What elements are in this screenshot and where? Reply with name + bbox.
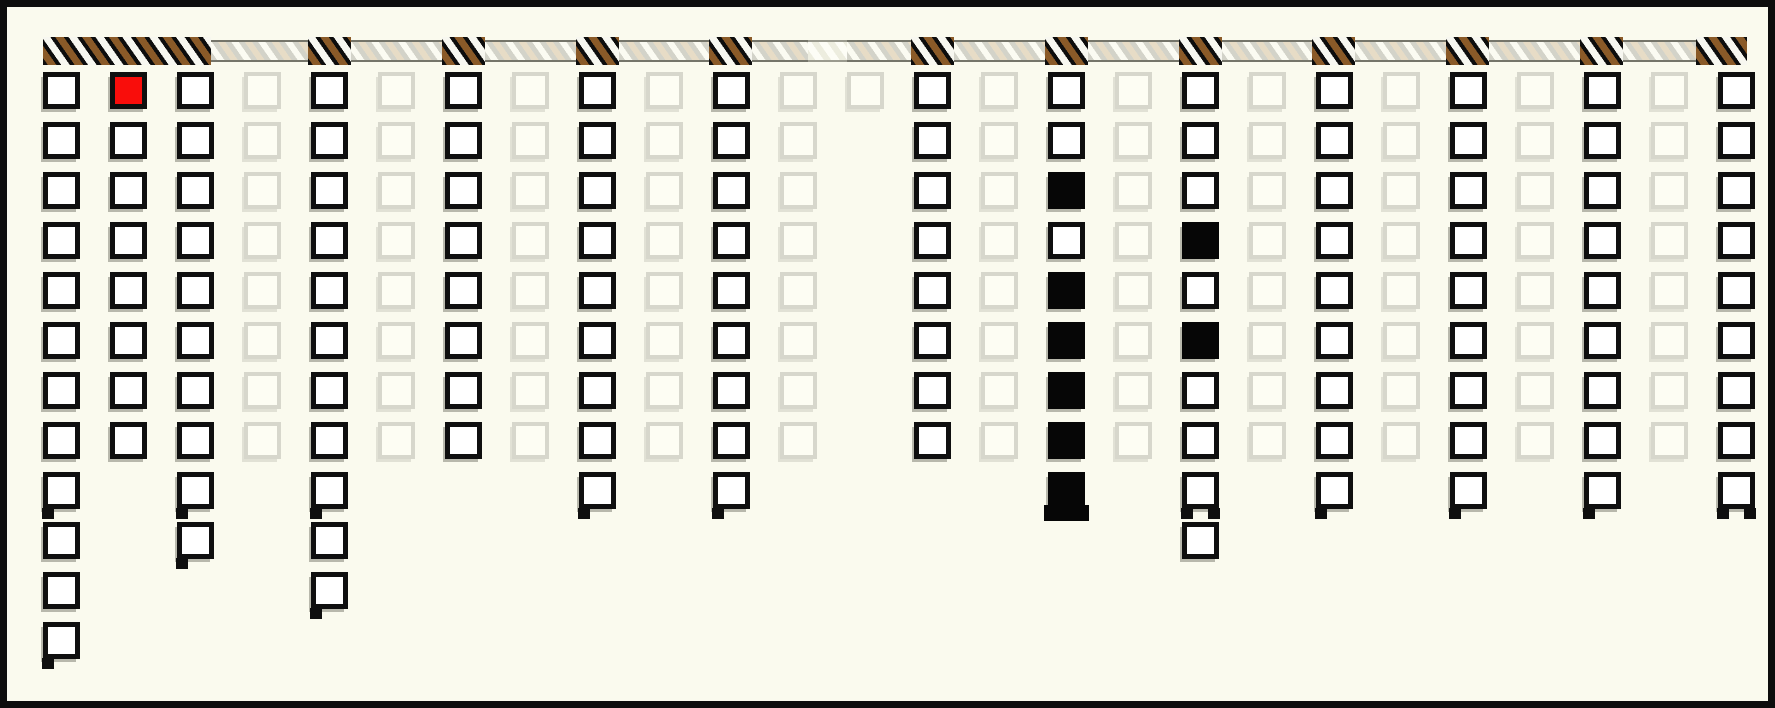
board-cell-c22-r2[interactable] — [1450, 122, 1487, 159]
board-cell-c19-r4[interactable] — [1249, 222, 1286, 259]
board-cell-c16-r7[interactable] — [1048, 372, 1085, 409]
board-cell-c7-r2[interactable] — [445, 122, 482, 159]
board-cell-c2-r8[interactable] — [110, 422, 147, 459]
board-cell-c17-r2[interactable] — [1115, 122, 1152, 159]
board-cell-c12-r1[interactable] — [780, 72, 817, 109]
board-cell-c4-r5[interactable] — [244, 272, 281, 309]
board-cell-c7-r6[interactable] — [445, 322, 482, 359]
board-cell-c22-r3[interactable] — [1450, 172, 1487, 209]
board-cell-c23-r1[interactable] — [1517, 72, 1554, 109]
track-segment-dark-20 — [1446, 37, 1489, 65]
board-cell-c5-r6[interactable] — [311, 322, 348, 359]
game-window — [0, 0, 1775, 708]
board-cell-c10-r5[interactable] — [646, 272, 683, 309]
board-cell-c26-r4[interactable] — [1718, 222, 1755, 259]
board-cell-c12-r4[interactable] — [780, 222, 817, 259]
board-cell-c9-r2[interactable] — [579, 122, 616, 159]
board-cell-c5-r2[interactable] — [311, 122, 348, 159]
track-segment-light-13 — [954, 40, 1045, 62]
board-cell-c14-r1[interactable] — [914, 72, 951, 109]
board-cell-c23-r5[interactable] — [1517, 272, 1554, 309]
board-cell-c24-r4[interactable] — [1584, 222, 1621, 259]
board-cell-c8-r7[interactable] — [512, 372, 549, 409]
board-cell-c26-r5[interactable] — [1718, 272, 1755, 309]
board-cell-c6-r3[interactable] — [378, 172, 415, 209]
board-cell-c14-r5[interactable] — [914, 272, 951, 309]
board-cell-c11-r6[interactable] — [713, 322, 750, 359]
board-cell-c5-r4[interactable] — [311, 222, 348, 259]
board-cell-c24-r9[interactable] — [1584, 472, 1621, 509]
board-cell-c3-r9[interactable] — [177, 472, 214, 509]
board-cell-c4-r8[interactable] — [244, 422, 281, 459]
track-segment-light-9 — [752, 40, 808, 62]
board-cell-c21-r3[interactable] — [1383, 172, 1420, 209]
board-cell-c13-r1[interactable] — [847, 72, 884, 109]
board-cell-c18-r9[interactable] — [1182, 472, 1219, 509]
board-cell-c8-r5[interactable] — [512, 272, 549, 309]
board-cell-c3-r5[interactable] — [177, 272, 214, 309]
board-cell-c18-r2[interactable] — [1182, 122, 1219, 159]
board-cell-c21-r7[interactable] — [1383, 372, 1420, 409]
board-cell-c15-r1[interactable] — [981, 72, 1018, 109]
board-cell-c11-r1[interactable] — [713, 72, 750, 109]
track-segment-dark-18 — [1312, 37, 1355, 65]
board-cell-c21-r4[interactable] — [1383, 222, 1420, 259]
board-cell-c10-r6[interactable] — [646, 322, 683, 359]
board-cell-c19-r6[interactable] — [1249, 322, 1286, 359]
board-cell-c20-r2[interactable] — [1316, 122, 1353, 159]
board-cell-c22-r9[interactable] — [1450, 472, 1487, 509]
track-segment-dark-22 — [1580, 37, 1623, 65]
track-segment-light-21 — [1489, 40, 1580, 62]
board-cell-c17-r4[interactable] — [1115, 222, 1152, 259]
board-cell-c2-r1[interactable] — [110, 72, 147, 109]
board-cell-c3-r2[interactable] — [177, 122, 214, 159]
board-cell-c9-r3[interactable] — [579, 172, 616, 209]
board-cell-c19-r7[interactable] — [1249, 372, 1286, 409]
board-cell-c25-r2[interactable] — [1651, 122, 1688, 159]
board-cell-c1-r7[interactable] — [43, 372, 80, 409]
board-cell-c25-r4[interactable] — [1651, 222, 1688, 259]
board-cell-c16-r1[interactable] — [1048, 72, 1085, 109]
board-cell-c8-r8[interactable] — [512, 422, 549, 459]
board-cell-c17-r1[interactable] — [1115, 72, 1152, 109]
board-cell-c1-r11[interactable] — [43, 572, 80, 609]
board-cell-c22-r5[interactable] — [1450, 272, 1487, 309]
board-cell-c11-r9[interactable] — [713, 472, 750, 509]
board-cell-c2-r2[interactable] — [110, 122, 147, 159]
board-cell-c5-r11[interactable] — [311, 572, 348, 609]
track-segment-dark-6 — [576, 37, 619, 65]
board-cell-c23-r8[interactable] — [1517, 422, 1554, 459]
board-cell-c6-r6[interactable] — [378, 322, 415, 359]
board-cell-c1-r10[interactable] — [43, 522, 80, 559]
track-segment-dark-14 — [1045, 37, 1088, 65]
board-cell-c20-r5[interactable] — [1316, 272, 1353, 309]
board-cell-c7-r4[interactable] — [445, 222, 482, 259]
board-cell-c7-r5[interactable] — [445, 272, 482, 309]
board-cell-c15-r7[interactable] — [981, 372, 1018, 409]
board-cell-c4-r6[interactable] — [244, 322, 281, 359]
board-cell-c11-r2[interactable] — [713, 122, 750, 159]
board-cell-c18-r3[interactable] — [1182, 172, 1219, 209]
board-cell-c9-r6[interactable] — [579, 322, 616, 359]
board-cell-c2-r6[interactable] — [110, 322, 147, 359]
board-cell-c5-r9[interactable] — [311, 472, 348, 509]
board-cell-c4-r2[interactable] — [244, 122, 281, 159]
board-cell-c1-r9[interactable] — [43, 472, 80, 509]
board-cell-c24-r8[interactable] — [1584, 422, 1621, 459]
board-cell-c4-r7[interactable] — [244, 372, 281, 409]
board-cell-c24-r6[interactable] — [1584, 322, 1621, 359]
board-cell-c18-r8[interactable] — [1182, 422, 1219, 459]
board-cell-c24-r7[interactable] — [1584, 372, 1621, 409]
board-cell-c6-r4[interactable] — [378, 222, 415, 259]
board-cell-c26-r8[interactable] — [1718, 422, 1755, 459]
track-segment-dark-4 — [442, 37, 485, 65]
board-cell-c17-r3[interactable] — [1115, 172, 1152, 209]
board-cell-c7-r8[interactable] — [445, 422, 482, 459]
board-cell-c25-r6[interactable] — [1651, 322, 1688, 359]
board-cell-c20-r9[interactable] — [1316, 472, 1353, 509]
board-cell-c16-r2[interactable] — [1048, 122, 1085, 159]
board-cell-c16-r5[interactable] — [1048, 272, 1085, 309]
board-cell-c6-r1[interactable] — [378, 72, 415, 109]
board-cell-c12-r6[interactable] — [780, 322, 817, 359]
board-cell-c24-r2[interactable] — [1584, 122, 1621, 159]
board-cell-c9-r4[interactable] — [579, 222, 616, 259]
board-cell-c1-r6[interactable] — [43, 322, 80, 359]
track-segment-light-19 — [1355, 40, 1446, 62]
board-cell-c7-r1[interactable] — [445, 72, 482, 109]
board-cell-c21-r6[interactable] — [1383, 322, 1420, 359]
track-segment-dark-12 — [911, 37, 954, 65]
track-segment-light-7 — [619, 40, 709, 62]
board-cell-c17-r7[interactable] — [1115, 372, 1152, 409]
board-cell-c16-r8[interactable] — [1048, 422, 1085, 459]
board-cell-c11-r7[interactable] — [713, 372, 750, 409]
board-cell-c8-r4[interactable] — [512, 222, 549, 259]
board-cell-c9-r8[interactable] — [579, 422, 616, 459]
board-cell-c17-r5[interactable] — [1115, 272, 1152, 309]
track-segment-light-3 — [351, 40, 442, 62]
board-cell-c12-r5[interactable] — [780, 272, 817, 309]
board-cell-c19-r2[interactable] — [1249, 122, 1286, 159]
board-cell-c10-r4[interactable] — [646, 222, 683, 259]
board-cell-c9-r7[interactable] — [579, 372, 616, 409]
board-cell-c10-r8[interactable] — [646, 422, 683, 459]
track-segment-light-1 — [211, 40, 308, 62]
board-cell-c25-r1[interactable] — [1651, 72, 1688, 109]
board-cell-c10-r1[interactable] — [646, 72, 683, 109]
board-cell-c10-r7[interactable] — [646, 372, 683, 409]
board-cell-c12-r7[interactable] — [780, 372, 817, 409]
board-cell-c6-r5[interactable] — [378, 272, 415, 309]
board-cell-c5-r1[interactable] — [311, 72, 348, 109]
board-cell-c15-r5[interactable] — [981, 272, 1018, 309]
board-cell-c5-r8[interactable] — [311, 422, 348, 459]
board-cell-c7-r7[interactable] — [445, 372, 482, 409]
board-cell-c24-r3[interactable] — [1584, 172, 1621, 209]
track-segment-dark-0 — [43, 37, 211, 65]
track-segment-light-5 — [485, 40, 576, 62]
board-cell-c5-r3[interactable] — [311, 172, 348, 209]
board-cell-c22-r1[interactable] — [1450, 72, 1487, 109]
board-cell-c12-r8[interactable] — [780, 422, 817, 459]
board-cell-c22-r8[interactable] — [1450, 422, 1487, 459]
board-cell-c10-r3[interactable] — [646, 172, 683, 209]
board-cell-c3-r3[interactable] — [177, 172, 214, 209]
board-cell-c11-r3[interactable] — [713, 172, 750, 209]
board-cell-c5-r5[interactable] — [311, 272, 348, 309]
board-cell-c18-r7[interactable] — [1182, 372, 1219, 409]
board-cell-c20-r8[interactable] — [1316, 422, 1353, 459]
board-cell-c16-r9[interactable] — [1048, 472, 1085, 509]
board-cell-c16-r3[interactable] — [1048, 172, 1085, 209]
board-cell-c5-r7[interactable] — [311, 372, 348, 409]
board-cell-c3-r7[interactable] — [177, 372, 214, 409]
board-cell-c20-r1[interactable] — [1316, 72, 1353, 109]
board-cell-c24-r5[interactable] — [1584, 272, 1621, 309]
board-cell-c1-r4[interactable] — [43, 222, 80, 259]
board-cell-c12-r2[interactable] — [780, 122, 817, 159]
board-cell-c20-r3[interactable] — [1316, 172, 1353, 209]
board-cell-c21-r2[interactable] — [1383, 122, 1420, 159]
board-cell-c20-r6[interactable] — [1316, 322, 1353, 359]
board-cell-c23-r4[interactable] — [1517, 222, 1554, 259]
track-segment-dark-16 — [1179, 37, 1222, 65]
board-cell-c14-r6[interactable] — [914, 322, 951, 359]
board-cell-c25-r3[interactable] — [1651, 172, 1688, 209]
board-cell-c7-r3[interactable] — [445, 172, 482, 209]
board-cell-c6-r2[interactable] — [378, 122, 415, 159]
board-cell-c18-r6[interactable] — [1182, 322, 1219, 359]
board-cell-c26-r9[interactable] — [1718, 472, 1755, 509]
board-cell-c17-r8[interactable] — [1115, 422, 1152, 459]
board-cell-c9-r9[interactable] — [579, 472, 616, 509]
board-cell-c8-r1[interactable] — [512, 72, 549, 109]
board-cell-c2-r4[interactable] — [110, 222, 147, 259]
board-cell-c3-r8[interactable] — [177, 422, 214, 459]
board-cell-c20-r7[interactable] — [1316, 372, 1353, 409]
board-cell-c8-r6[interactable] — [512, 322, 549, 359]
track-segment-light-15 — [1088, 40, 1179, 62]
board-cell-c19-r1[interactable] — [1249, 72, 1286, 109]
board-cell-c8-r2[interactable] — [512, 122, 549, 159]
board-cell-c25-r5[interactable] — [1651, 272, 1688, 309]
board-cell-c4-r3[interactable] — [244, 172, 281, 209]
board-cell-c26-r2[interactable] — [1718, 122, 1755, 159]
board-cell-c26-r1[interactable] — [1718, 72, 1755, 109]
board-cell-c3-r10[interactable] — [177, 522, 214, 559]
board-cell-c25-r8[interactable] — [1651, 422, 1688, 459]
track-segment-light-11 — [847, 40, 911, 62]
board-cell-c23-r7[interactable] — [1517, 372, 1554, 409]
board-cell-c9-r5[interactable] — [579, 272, 616, 309]
board-cell-c2-r7[interactable] — [110, 372, 147, 409]
board-cell-c11-r4[interactable] — [713, 222, 750, 259]
track-segment-dark-8 — [709, 37, 752, 65]
board-cell-c3-r1[interactable] — [177, 72, 214, 109]
track-segment-light-23 — [1623, 40, 1696, 62]
board-cell-c15-r4[interactable] — [981, 222, 1018, 259]
board-cell-c22-r6[interactable] — [1450, 322, 1487, 359]
board-cell-c2-r3[interactable] — [110, 172, 147, 209]
board-cell-c21-r5[interactable] — [1383, 272, 1420, 309]
board-cell-c18-r5[interactable] — [1182, 272, 1219, 309]
board-cell-c1-r8[interactable] — [43, 422, 80, 459]
board-cell-c22-r7[interactable] — [1450, 372, 1487, 409]
board-cell-c17-r6[interactable] — [1115, 322, 1152, 359]
board-cell-c14-r4[interactable] — [914, 222, 951, 259]
board-cell-c1-r3[interactable] — [43, 172, 80, 209]
board-cell-c1-r2[interactable] — [43, 122, 80, 159]
board-cell-c15-r3[interactable] — [981, 172, 1018, 209]
board-cell-c18-r10[interactable] — [1182, 522, 1219, 559]
board-cell-c22-r4[interactable] — [1450, 222, 1487, 259]
board-cell-c11-r8[interactable] — [713, 422, 750, 459]
board-cell-c18-r1[interactable] — [1182, 72, 1219, 109]
board-cell-c14-r2[interactable] — [914, 122, 951, 159]
board-cell-c14-r7[interactable] — [914, 372, 951, 409]
board-cell-c19-r3[interactable] — [1249, 172, 1286, 209]
board-cell-c20-r4[interactable] — [1316, 222, 1353, 259]
track-segment-dark-2 — [308, 37, 351, 65]
board-cell-c1-r12[interactable] — [43, 622, 80, 659]
board-cell-c23-r2[interactable] — [1517, 122, 1554, 159]
board-cell-c21-r8[interactable] — [1383, 422, 1420, 459]
board-cell-c1-r5[interactable] — [43, 272, 80, 309]
board-cell-c24-r1[interactable] — [1584, 72, 1621, 109]
board-cell-c3-r4[interactable] — [177, 222, 214, 259]
board-cell-c6-r7[interactable] — [378, 372, 415, 409]
board-cell-c19-r8[interactable] — [1249, 422, 1286, 459]
board-cell-c21-r1[interactable] — [1383, 72, 1420, 109]
board-cell-c16-r6[interactable] — [1048, 322, 1085, 359]
board-cell-c23-r6[interactable] — [1517, 322, 1554, 359]
board-cell-c4-r4[interactable] — [244, 222, 281, 259]
track-segment-light-17 — [1222, 40, 1312, 62]
board-cell-c26-r7[interactable] — [1718, 372, 1755, 409]
board-cell-c15-r8[interactable] — [981, 422, 1018, 459]
board-cell-c15-r6[interactable] — [981, 322, 1018, 359]
board-cell-c15-r2[interactable] — [981, 122, 1018, 159]
board-cell-c19-r5[interactable] — [1249, 272, 1286, 309]
board-cell-c14-r8[interactable] — [914, 422, 951, 459]
board-cell-c2-r5[interactable] — [110, 272, 147, 309]
board-cell-c14-r3[interactable] — [914, 172, 951, 209]
board-cell-c12-r3[interactable] — [780, 172, 817, 209]
board-cell-c16-r4[interactable] — [1048, 222, 1085, 259]
board-cell-c4-r1[interactable] — [244, 72, 281, 109]
board-cell-c18-r4[interactable] — [1182, 222, 1219, 259]
board-cell-c23-r3[interactable] — [1517, 172, 1554, 209]
board-cell-c10-r2[interactable] — [646, 122, 683, 159]
board-cell-c25-r7[interactable] — [1651, 372, 1688, 409]
board-cell-c5-r10[interactable] — [311, 522, 348, 559]
board-cell-c3-r6[interactable] — [177, 322, 214, 359]
board-cell-c11-r5[interactable] — [713, 272, 750, 309]
board-cell-c26-r3[interactable] — [1718, 172, 1755, 209]
track-segment-dark-24 — [1696, 37, 1747, 65]
board-cell-c8-r3[interactable] — [512, 172, 549, 209]
board-cell-c26-r6[interactable] — [1718, 322, 1755, 359]
board-cell-c9-r1[interactable] — [579, 72, 616, 109]
board-cell-c6-r8[interactable] — [378, 422, 415, 459]
track-segment-white-10 — [808, 40, 847, 62]
board-cell-c1-r1[interactable] — [43, 72, 80, 109]
